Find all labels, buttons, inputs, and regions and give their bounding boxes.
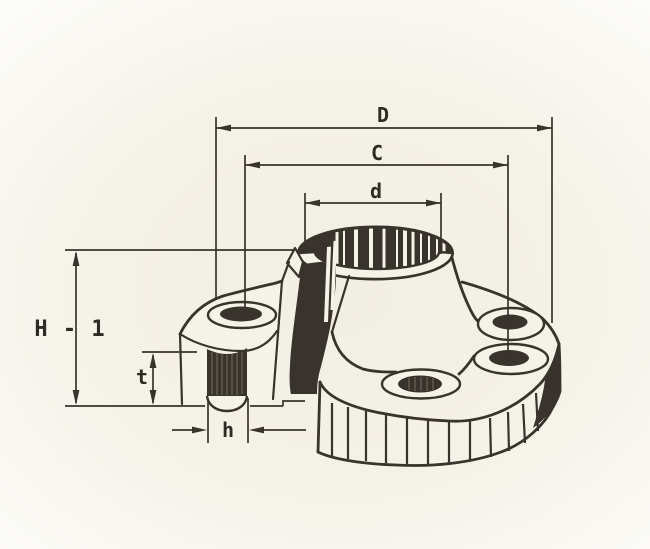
- bolt-hole-front: [398, 376, 442, 393]
- dim-C-arrowhead-left: [245, 162, 260, 169]
- bolt-hole-front-group: [382, 370, 460, 399]
- dim-h-arrowhead-left: [192, 427, 207, 434]
- dim-D-arrowhead-left: [216, 125, 231, 132]
- bolt-section: [207, 348, 247, 411]
- neck-base-fillet: [332, 332, 396, 372]
- dim-H1-arrowhead-up: [73, 251, 80, 266]
- dim-d-arrowhead-left: [305, 200, 320, 207]
- dim-label-C: C: [371, 141, 383, 165]
- dim-label-t: t: [136, 365, 148, 389]
- bolt-hole-back-left: [220, 307, 262, 322]
- cut-edge-to-lip: [282, 262, 289, 281]
- dim-t-arrowhead-down: [150, 390, 157, 405]
- bolt-hole-right-lower-group: [474, 344, 548, 374]
- dim-d-arrowhead-right: [426, 200, 441, 207]
- dim-D-arrowhead-right: [537, 125, 552, 132]
- flange-technical-drawing: D C d H - 1: [0, 0, 650, 549]
- dim-label-h: h: [222, 418, 234, 442]
- neck-right-edge: [451, 254, 480, 323]
- dim-h-arrowhead-right: [249, 427, 264, 434]
- bolt-section-hatch: [212, 352, 242, 395]
- bolt-hole-right-lower: [489, 350, 529, 366]
- flange-body: [65, 227, 560, 465]
- neck-base-fillet-right: [459, 356, 474, 374]
- dim-C-arrowhead-right: [493, 162, 508, 169]
- bolt-hole-right-upper: [493, 315, 528, 330]
- rim-cut-edge: [318, 382, 320, 452]
- drawing-canvas: D C d H - 1: [0, 0, 650, 549]
- dim-H1-arrowhead-down: [73, 390, 80, 405]
- bolt-hole-right-upper-group: [478, 308, 544, 340]
- dim-label-H1: H - 1: [34, 317, 105, 342]
- bolt-hole-bottom-dome: [207, 396, 247, 411]
- dim-t-arrowhead-up: [150, 353, 157, 368]
- dim-label-D: D: [377, 103, 389, 127]
- dim-label-d: d: [370, 179, 382, 203]
